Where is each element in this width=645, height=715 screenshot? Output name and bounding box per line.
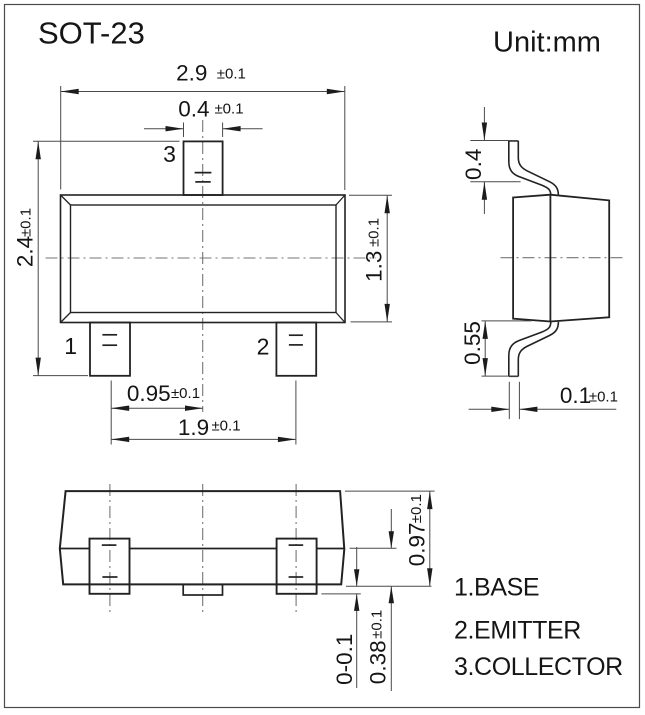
svg-text:0.4: 0.4 [461,149,486,180]
svg-text:1: 1 [64,333,77,359]
svg-text:0.38: 0.38 [366,640,391,684]
svg-text:2: 2 [257,334,270,360]
svg-text:0.1: 0.1 [560,383,591,408]
svg-text:±0.1: ±0.1 [217,65,246,82]
svg-text:2.9: 2.9 [176,61,207,86]
svg-text:Unit:mm: Unit:mm [493,27,601,59]
svg-text:SOT-23: SOT-23 [38,16,145,51]
svg-text:±0.1: ±0.1 [211,418,240,435]
svg-text:0.95: 0.95 [127,381,171,406]
svg-text:±0.1: ±0.1 [214,101,243,118]
svg-text:0-0.1: 0-0.1 [332,634,357,685]
svg-text:±0.1: ±0.1 [589,389,618,406]
svg-text:±0.1: ±0.1 [171,385,200,402]
svg-text:1.BASE: 1.BASE [454,574,539,602]
svg-text:±0.1: ±0.1 [18,208,35,237]
svg-text:1.9: 1.9 [178,415,209,440]
svg-text:1.3: 1.3 [362,251,387,282]
svg-text:±0.1: ±0.1 [408,494,425,523]
svg-text:0.55: 0.55 [460,321,485,365]
svg-text:3: 3 [163,141,176,167]
svg-text:±0.1: ±0.1 [369,610,386,639]
svg-text:2.4: 2.4 [13,236,38,267]
svg-text:0.4: 0.4 [178,97,209,122]
svg-text:2.EMITTER: 2.EMITTER [454,616,581,644]
svg-text:±0.1: ±0.1 [366,218,383,247]
svg-text:3.COLLECTOR: 3.COLLECTOR [454,653,623,681]
svg-text:0.97: 0.97 [405,523,430,567]
